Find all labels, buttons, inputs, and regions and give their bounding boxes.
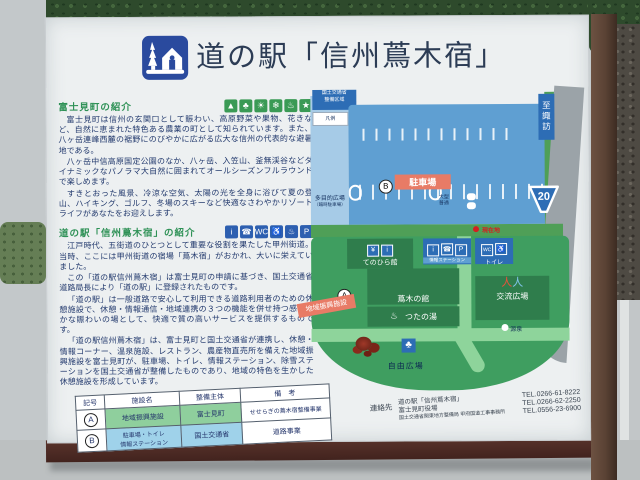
station-section-heading: 道の駅「信州蔦木宿」の紹介 bbox=[59, 225, 196, 240]
parking-size-labels: 大型 普通 bbox=[439, 194, 449, 206]
description-column: 富士見町の紹介 ▲ ♣ ☀ ❄ ♨ ★ 富士見町は信州の玄関口として賑わい、高原… bbox=[58, 95, 314, 389]
parking-stall-arc bbox=[349, 185, 362, 201]
photo-of-roadside-sign: 道の駅「信州蔦木宿」 富士見町の紹介 ▲ ♣ ☀ ❄ ♨ ★ 富士見町は信州の玄… bbox=[0, 0, 640, 480]
telephone-icon: ☎ bbox=[240, 225, 253, 238]
town-paragraph-1: 富士見町は信州の玄関口として賑わい、高原野菜や果物、花きなど、自然に恵まれた特色… bbox=[58, 114, 312, 156]
car-icon: P bbox=[455, 244, 467, 256]
info-icon: i bbox=[381, 244, 393, 256]
mark-a: A bbox=[84, 412, 99, 427]
koryu-plaza: 人人 交流広場 bbox=[475, 276, 549, 320]
parking-small-icon bbox=[467, 202, 476, 209]
bush-left bbox=[0, 222, 46, 284]
sun-icon: ☀ bbox=[254, 99, 267, 112]
sign-title: 道の駅「信州蔦木宿」 bbox=[196, 32, 506, 76]
wheelchair-icon: ♿ bbox=[270, 225, 283, 238]
information-icon: i bbox=[225, 225, 238, 238]
information-station: i☎P 情報ステーション bbox=[423, 238, 471, 264]
info-icon: i bbox=[427, 244, 439, 256]
town-pictogram-row: ▲ ♣ ☀ ❄ ♨ ★ bbox=[224, 99, 312, 112]
tree-icon: ♣ bbox=[239, 99, 252, 112]
parking-stalls-top bbox=[362, 128, 514, 141]
parking-label: 駐車場 bbox=[395, 174, 451, 189]
hotspring-icon: ♨ bbox=[284, 99, 297, 112]
station-pictogram-row: i ☎ WC ♿ ♨ P bbox=[225, 225, 313, 238]
michinoeki-logo-icon bbox=[142, 36, 188, 80]
jiyu-plaza-label: 自由広場 bbox=[388, 360, 424, 371]
to-suwa-label: 至諏訪 bbox=[538, 94, 554, 140]
parking-mark: B bbox=[379, 176, 393, 194]
town-section-heading: 富士見町の紹介 bbox=[58, 99, 132, 113]
current-location-dot bbox=[473, 226, 479, 232]
station-map: 多目的広場 （臨時駐車場） 国土交通省 整備区域 凡例 B 駐車場 大型 普通 bbox=[310, 88, 586, 391]
col-mark: 記号 bbox=[75, 395, 105, 410]
playing-child-icon: 人 bbox=[501, 277, 512, 289]
wheelchair-icon: ♿ bbox=[495, 243, 507, 255]
flower-bed bbox=[356, 337, 372, 351]
onsen-icon: ♨ bbox=[390, 311, 402, 323]
legend-note: 凡例 bbox=[312, 112, 348, 126]
snow-icon: ❄ bbox=[269, 99, 282, 112]
playing-child-icon: 人 bbox=[512, 277, 523, 289]
town-paragraph-2: 八ヶ岳中信高原国定公園のなか、八ヶ岳、入笠山、釜無渓谷などダイナミックなパノラマ… bbox=[59, 156, 313, 188]
shop-icon: ¥ bbox=[367, 244, 379, 256]
tree-icon: ♣ bbox=[402, 338, 416, 352]
contacts-label: 連絡先 bbox=[369, 400, 393, 425]
route-20-badge: 20 bbox=[527, 184, 561, 221]
spring-circle-icon bbox=[502, 324, 509, 331]
contact-block: 連絡先 道の駅「信州蔦木宿」 TEL.0266-61-8222 富士見町役場 T… bbox=[369, 387, 606, 425]
onsen-icon: ♨ bbox=[285, 225, 298, 238]
spring-source: 源泉 bbox=[502, 324, 523, 333]
restroom-icon: WC bbox=[481, 244, 493, 256]
town-paragraph-3: すきとおった風景、冷涼な空気、太陽の光を全身に浴びて夏の登山、ハイキング、ゴルフ… bbox=[59, 188, 313, 220]
agency-b: 国土交通省 bbox=[181, 422, 243, 447]
phone-icon: ☎ bbox=[441, 243, 453, 255]
mark-b: B bbox=[85, 433, 100, 448]
station-paragraph-1: 江戸時代、五街道のひとつとして重要な役割を果たした甲州街道。当時、ここには甲州街… bbox=[59, 240, 313, 272]
parking-small-icon bbox=[467, 193, 476, 200]
tsutaki-hall: 蔦木の館 bbox=[367, 268, 459, 304]
svg-text:20: 20 bbox=[538, 191, 550, 203]
multipurpose-label: 多目的広場 （臨時駐車場） bbox=[311, 193, 349, 208]
restroom-icon: WC bbox=[255, 225, 268, 238]
facility-b-line2: 情報ステーション bbox=[109, 436, 179, 448]
station-paragraph-3: 「道の駅」は一般道路で安心して利用できる道路利用者のための休憩施設で、休憩・情報… bbox=[59, 294, 313, 336]
station-paragraph-4: 「道の駅信州蔦木宿」は、富士見町と国土交通省が連携し、休憩・情報コーナー、温泉施… bbox=[60, 335, 314, 388]
tsutanoyu-onsen: ♨ つたの湯 bbox=[367, 306, 459, 326]
footpath-horizontal bbox=[312, 328, 570, 342]
current-location-label: 現在地 bbox=[482, 225, 500, 234]
sign-board: 道の駅「信州蔦木宿」 富士見町の紹介 ▲ ♣ ☀ ❄ ♨ ★ 富士見町は信州の玄… bbox=[45, 15, 591, 444]
facility-grounds: ¥i てのひら館 i☎P 情報ステーション WC♿ トイレ 蔦木の館 bbox=[311, 236, 570, 391]
mountain-icon: ▲ bbox=[224, 99, 237, 112]
note-b: 道路事業 bbox=[242, 418, 332, 444]
toilet-block: WC♿ トイレ bbox=[475, 238, 513, 264]
station-paragraph-2: この「道の駅信州蔦木宿」は富士見町の申請に基づき、国土交通省道路局長により「道の… bbox=[59, 272, 313, 294]
tenohira-hall: ¥i てのひら館 bbox=[347, 239, 413, 269]
